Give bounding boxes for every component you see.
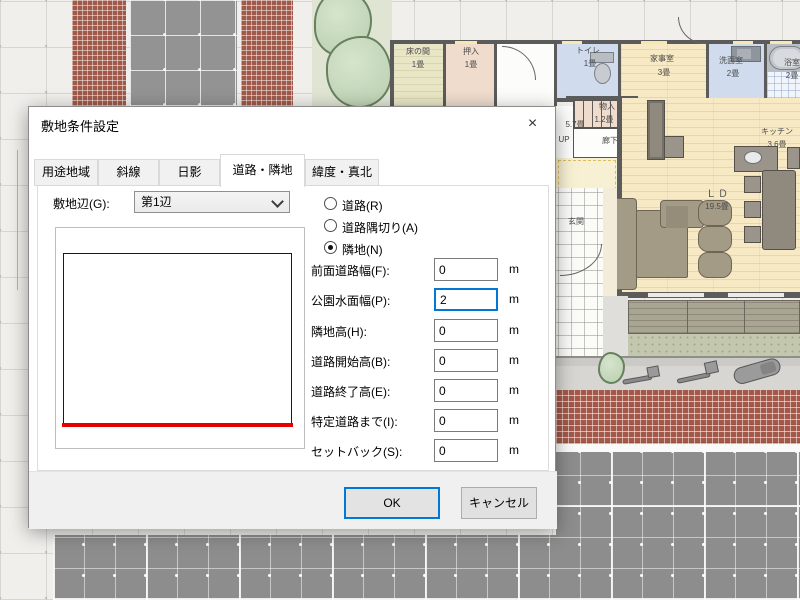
room-size: 2畳 — [727, 70, 739, 78]
concrete-drive — [130, 0, 237, 106]
field-label: 隣地高(H): — [311, 323, 367, 340]
stairs-direction-label: UP — [558, 136, 569, 144]
room-size: 1.2畳 — [594, 116, 613, 124]
room-label: ＬＤ — [706, 190, 730, 200]
setback-input[interactable] — [434, 439, 498, 462]
dining-chair — [744, 226, 761, 243]
radio-road[interactable] — [324, 197, 337, 210]
wall — [618, 44, 621, 98]
unit-label: m — [509, 353, 519, 367]
tree-icon — [326, 36, 392, 108]
wall — [764, 44, 767, 98]
field-label: 道路開始高(B): — [311, 353, 390, 370]
field-label: 前面道路幅(F): — [311, 262, 390, 279]
room-label: 浴室 — [784, 59, 800, 67]
radio-road-label: 道路(R) — [342, 197, 383, 214]
ok-button[interactable]: OK — [344, 487, 440, 519]
tab-use-district[interactable]: 用途地域 — [34, 159, 98, 186]
application-window: 床の間 1畳 押入 1畳 トイレ 1畳 家事室 3畳 洗面室 2畳 浴室 2畳 … — [0, 0, 800, 600]
room-label: 家事室 — [650, 55, 674, 63]
room-size: 1畳 — [465, 61, 477, 69]
wall — [494, 44, 497, 106]
cancel-button[interactable]: キャンセル — [461, 487, 537, 519]
toilet-icon — [594, 63, 611, 84]
specific-road-distance-input[interactable] — [434, 409, 498, 432]
site-outline — [63, 253, 292, 425]
tab-road-adjacent[interactable]: 道路・隣地 — [220, 154, 305, 187]
road-end-height-input[interactable] — [434, 379, 498, 402]
wall — [390, 40, 394, 106]
dining-chair — [744, 201, 761, 218]
radio-adjacent-land[interactable] — [324, 241, 337, 254]
field-label: セットバック(S): — [311, 443, 402, 460]
room-label: 物入 — [599, 103, 615, 111]
room-label: 洗面室 — [719, 57, 743, 65]
window-marker — [733, 41, 753, 44]
room-size: 3畳 — [658, 69, 670, 77]
unit-label: m — [509, 292, 519, 306]
wood-deck — [628, 300, 800, 334]
wall — [554, 40, 557, 106]
room-label: トイレ — [576, 47, 600, 55]
dining-chair — [744, 176, 761, 193]
unit-label: m — [509, 413, 519, 427]
selected-edge-line — [62, 423, 293, 427]
brick-band — [556, 390, 800, 444]
room-size: 3.6畳 — [767, 141, 786, 149]
room-size: 19.5畳 — [705, 203, 729, 211]
guide-box — [558, 160, 616, 190]
field-label: 特定道路まで(I): — [311, 413, 398, 430]
site-edge-value: 第1辺 — [141, 195, 172, 209]
tab-slant-line[interactable]: 斜線 — [98, 159, 159, 186]
deck-joint — [687, 300, 688, 334]
sofa-cushion — [698, 226, 732, 252]
adjacent-land-height-input[interactable] — [434, 319, 498, 342]
tab-latitude-north[interactable]: 緯度・真北 — [305, 159, 379, 186]
window-marker — [562, 41, 582, 44]
site-edge-label: 敷地辺(G): — [53, 195, 110, 212]
boundary-line — [17, 150, 18, 290]
entrance-interior — [603, 188, 617, 296]
road-shoulder — [556, 444, 800, 452]
unit-label: m — [509, 323, 519, 337]
refrigerator-icon — [787, 147, 800, 169]
room-size: 2畳 — [786, 72, 798, 80]
room-label: 床の間 — [406, 48, 430, 56]
dialog-title: 敷地条件設定 — [41, 116, 119, 135]
field-label: 道路終了高(E): — [311, 383, 390, 400]
room-label: 押入 — [463, 48, 479, 56]
room-label: 玄関 — [568, 218, 584, 226]
radio-road-corner[interactable] — [324, 219, 337, 232]
site-conditions-dialog: 敷地条件設定 × 用途地域 斜線 日影 道路・隣地 緯度・真北 敷地辺(G): … — [28, 106, 556, 528]
brick-path — [72, 0, 126, 106]
sofa-cushion — [698, 252, 732, 278]
radio-adjacent-land-label: 隣地(N) — [342, 241, 383, 258]
room-label: 廊下 — [602, 137, 618, 145]
room-size: 5.7畳 — [565, 121, 584, 129]
window-marker — [728, 293, 784, 297]
unit-label: m — [509, 383, 519, 397]
park-water-width-input[interactable] — [434, 288, 498, 311]
road-start-height-input[interactable] — [434, 349, 498, 372]
radio-road-corner-label: 道路隅切り(A) — [342, 219, 418, 236]
unit-label: m — [509, 443, 519, 457]
wall — [443, 44, 446, 106]
window-marker — [455, 41, 477, 44]
window-marker — [641, 41, 667, 44]
deck-joint — [744, 300, 745, 334]
front-road-width-input[interactable] — [434, 258, 498, 281]
sink-icon — [744, 151, 762, 164]
kitchen-counter-top — [650, 103, 662, 157]
window-marker — [648, 293, 704, 297]
room-size: 1畳 — [584, 60, 596, 68]
field-label: 公園水面幅(P): — [311, 292, 390, 309]
dining-table — [762, 170, 796, 250]
wall — [706, 44, 709, 98]
close-icon[interactable]: × — [510, 107, 555, 141]
sofa-cushion — [666, 206, 688, 228]
room-size: 1畳 — [412, 61, 424, 69]
kitchen-table — [664, 136, 684, 158]
brick-path — [241, 0, 293, 106]
site-edge-select[interactable]: 第1辺 — [134, 191, 290, 213]
chevron-down-icon — [271, 195, 284, 208]
tab-shadow[interactable]: 日影 — [159, 159, 220, 186]
room-label: キッチン — [761, 128, 793, 136]
unit-label: m — [509, 262, 519, 276]
window-marker — [770, 41, 792, 44]
